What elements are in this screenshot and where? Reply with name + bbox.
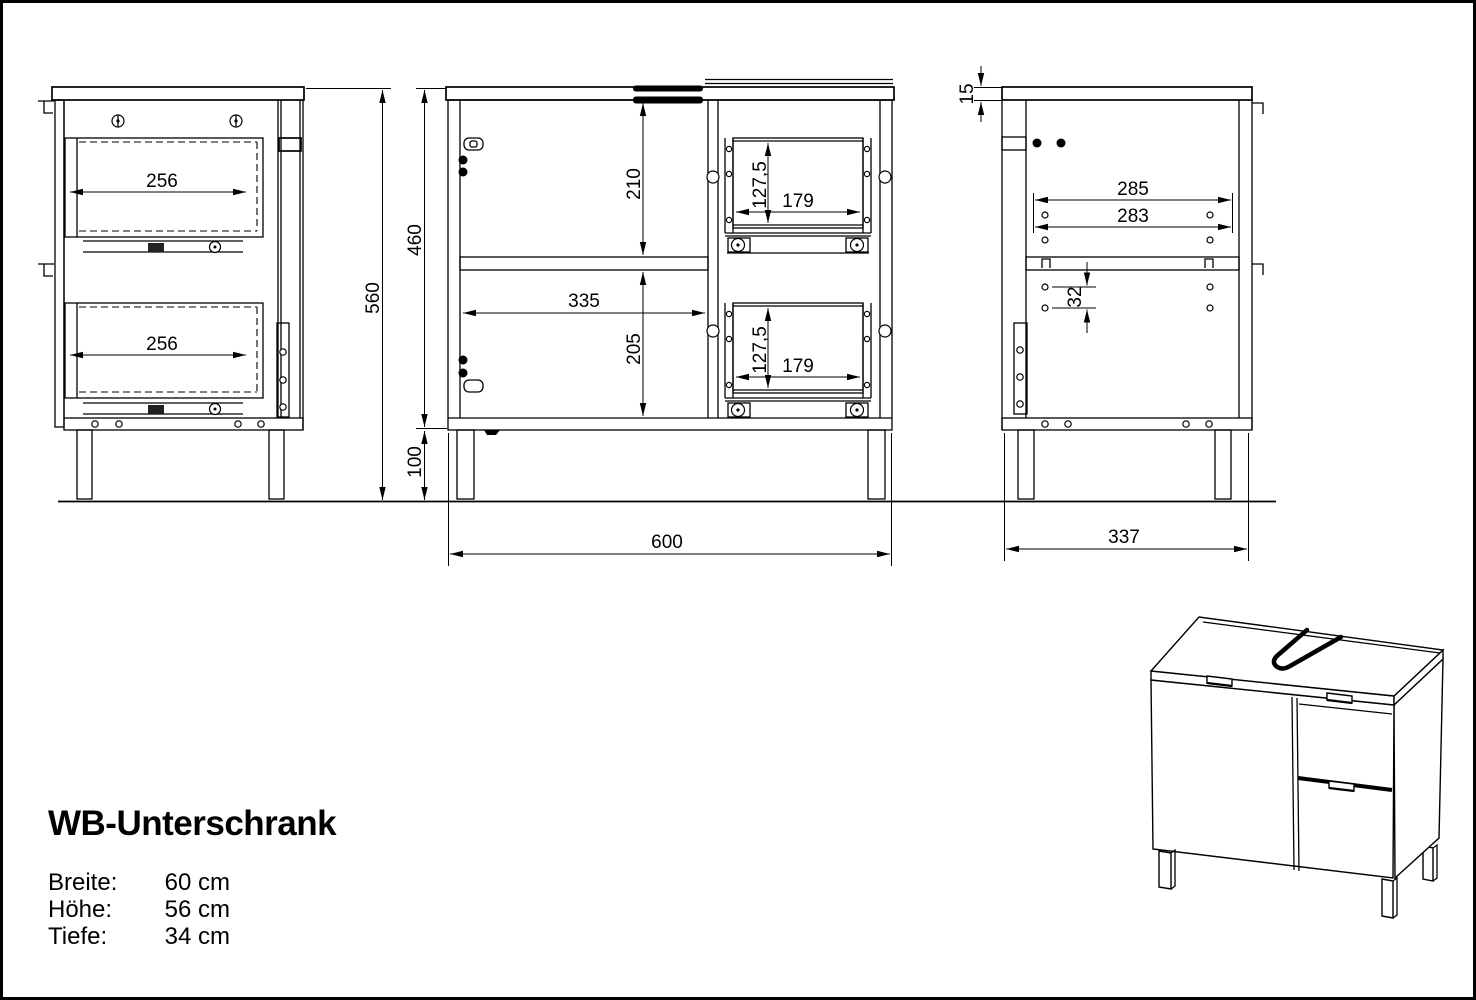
spec-label: Breite: — [48, 869, 158, 896]
product-title: WB-Unterschrank — [48, 804, 336, 844]
dim-leg-height: 100 — [405, 431, 426, 500]
title-block: WB-Unterschrank — [48, 804, 336, 844]
perspective-view — [1151, 617, 1443, 918]
dim-total-width: 600 — [449, 433, 892, 566]
svg-text:100: 100 — [405, 446, 426, 478]
hinge-icon — [459, 138, 484, 177]
screw-icon — [230, 115, 242, 127]
spec-value: 60 cm — [165, 869, 230, 896]
spec-value: 34 cm — [165, 923, 230, 950]
hinge-icon — [459, 356, 484, 393]
dim-drawer-depth-top: 256 — [146, 171, 178, 192]
spec-label: Tiefe: — [48, 923, 158, 950]
svg-text:560: 560 — [363, 282, 384, 314]
front-view: 127,5 179 127,5 179 — [446, 80, 894, 500]
spec-table: Breite: 60 cm Höhe: 56 cm Tiefe: 34 cm — [48, 869, 230, 950]
drawer-lower-front: 127,5 179 — [725, 303, 871, 417]
siphon-cutout-edge — [633, 86, 703, 92]
dim-back-width-outer: 285 — [1117, 179, 1149, 200]
side-view: 256 256 — [38, 87, 304, 499]
spec-row-tiefe: Tiefe: 34 cm — [48, 923, 230, 950]
dim-upper-opening: 210 — [624, 168, 645, 200]
svg-text:127,5: 127,5 — [750, 326, 771, 374]
dim-lower-opening: 205 — [624, 333, 645, 365]
spec-label: Höhe: — [48, 896, 158, 923]
dim-shelf-width: 335 — [568, 291, 600, 312]
dim-total-depth: 337 — [1005, 433, 1249, 561]
back-view: 15 285 283 32 — [957, 66, 1263, 499]
dim-total-height: 560 — [306, 89, 391, 501]
svg-text:32: 32 — [1065, 286, 1086, 307]
spec-row-breite: Breite: 60 cm — [48, 869, 230, 896]
svg-text:460: 460 — [405, 224, 426, 256]
screw-icon — [112, 115, 124, 127]
svg-text:179: 179 — [782, 356, 814, 377]
spec-row-hoehe: Höhe: 56 cm — [48, 896, 230, 923]
svg-text:179: 179 — [782, 191, 814, 212]
svg-text:337: 337 — [1108, 527, 1140, 548]
dim-drawer-depth-bottom: 256 — [146, 334, 178, 355]
dim-hole-spacing: 32 — [1052, 262, 1096, 333]
drawer-upper-front: 127,5 179 — [725, 138, 871, 253]
dimension-sheet: 256 256 560 460 100 — [0, 0, 1476, 1000]
dim-back-width-inner: 283 — [1117, 206, 1149, 227]
spec-value: 56 cm — [165, 896, 230, 923]
dim-top-thickness: 15 — [957, 66, 1003, 122]
svg-text:15: 15 — [957, 83, 978, 104]
technical-drawing: 256 256 560 460 100 — [0, 0, 1476, 1000]
dim-body-height: 460 — [405, 89, 447, 429]
svg-text:600: 600 — [651, 532, 683, 553]
svg-text:127,5: 127,5 — [750, 161, 771, 209]
